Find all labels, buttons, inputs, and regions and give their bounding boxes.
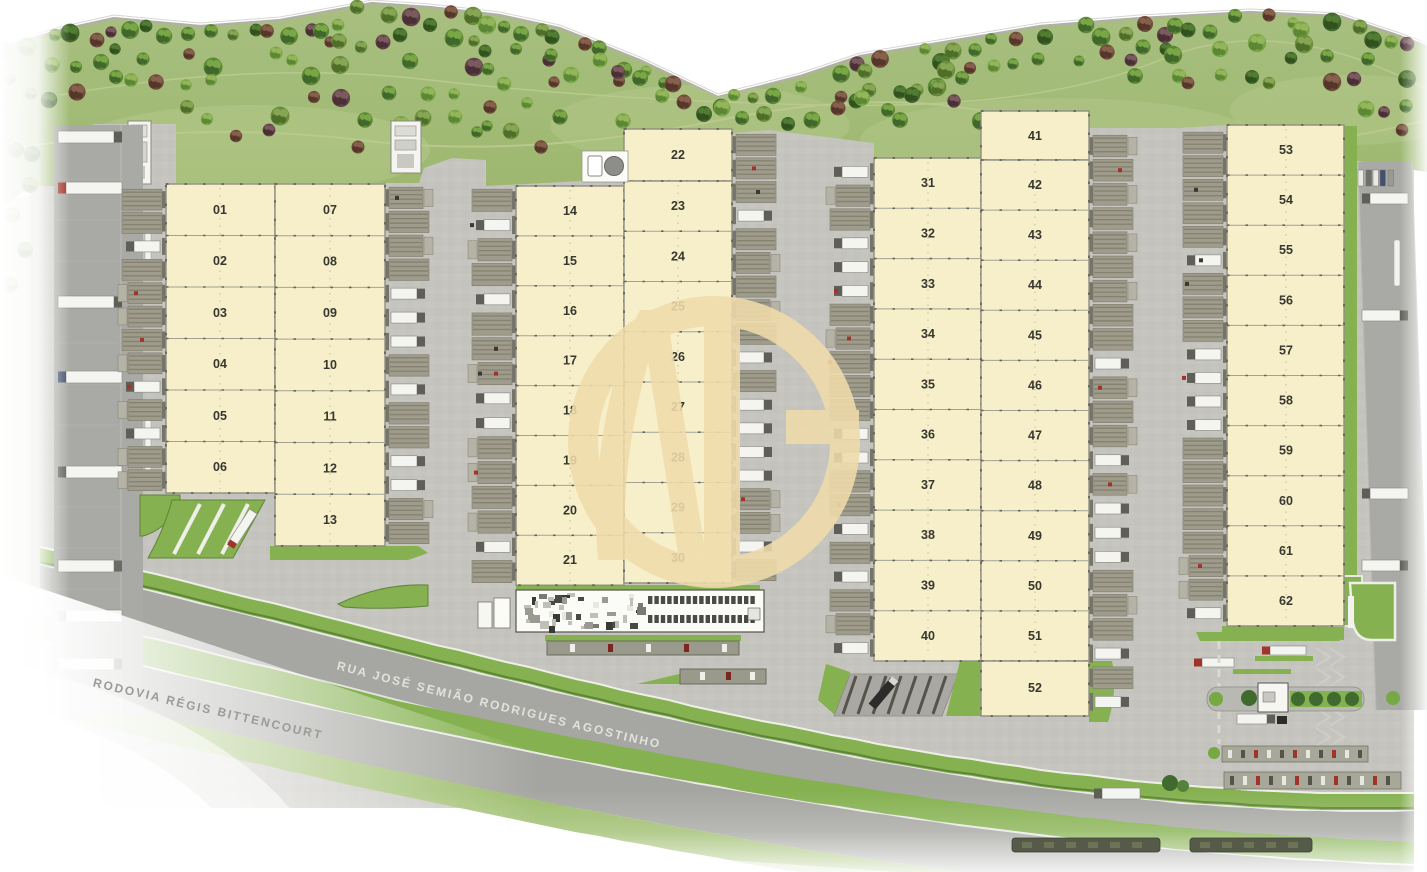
svg-text:03: 03 — [213, 306, 227, 320]
svg-text:57: 57 — [1279, 343, 1293, 357]
svg-text:43: 43 — [1028, 228, 1042, 242]
svg-text:31: 31 — [921, 176, 935, 190]
svg-text:42: 42 — [1028, 178, 1042, 192]
svg-text:47: 47 — [1028, 429, 1042, 443]
svg-text:46: 46 — [1028, 378, 1042, 392]
svg-text:50: 50 — [1028, 579, 1042, 593]
svg-text:36: 36 — [921, 428, 935, 442]
svg-text:35: 35 — [921, 377, 935, 391]
svg-text:04: 04 — [213, 357, 227, 371]
svg-text:51: 51 — [1028, 629, 1042, 643]
svg-text:22: 22 — [671, 148, 685, 162]
svg-text:38: 38 — [921, 528, 935, 542]
svg-text:02: 02 — [213, 254, 227, 268]
svg-text:53: 53 — [1279, 143, 1293, 157]
svg-text:59: 59 — [1279, 444, 1293, 458]
svg-text:37: 37 — [921, 478, 935, 492]
svg-text:23: 23 — [671, 199, 685, 213]
svg-text:13: 13 — [323, 513, 337, 527]
svg-text:21: 21 — [563, 553, 577, 567]
svg-text:15: 15 — [563, 254, 577, 268]
svg-text:12: 12 — [323, 461, 337, 475]
svg-text:54: 54 — [1279, 193, 1293, 207]
svg-text:61: 61 — [1279, 544, 1293, 558]
svg-text:09: 09 — [323, 306, 337, 320]
svg-text:40: 40 — [921, 629, 935, 643]
svg-text:44: 44 — [1028, 278, 1042, 292]
svg-text:56: 56 — [1279, 293, 1293, 307]
svg-text:06: 06 — [213, 460, 227, 474]
svg-text:08: 08 — [323, 255, 337, 269]
svg-text:14: 14 — [563, 204, 577, 218]
svg-text:20: 20 — [563, 503, 577, 517]
svg-text:01: 01 — [213, 203, 227, 217]
svg-text:60: 60 — [1279, 494, 1293, 508]
svg-text:52: 52 — [1028, 681, 1042, 695]
svg-text:45: 45 — [1028, 328, 1042, 342]
svg-text:62: 62 — [1279, 594, 1293, 608]
svg-text:05: 05 — [213, 409, 227, 423]
svg-text:41: 41 — [1028, 129, 1042, 143]
svg-text:24: 24 — [671, 249, 685, 263]
svg-text:58: 58 — [1279, 394, 1293, 408]
svg-text:34: 34 — [921, 327, 935, 341]
svg-text:39: 39 — [921, 579, 935, 593]
svg-text:32: 32 — [921, 227, 935, 241]
svg-text:16: 16 — [563, 304, 577, 318]
svg-text:48: 48 — [1028, 479, 1042, 493]
svg-text:10: 10 — [323, 358, 337, 372]
svg-text:17: 17 — [563, 354, 577, 368]
svg-text:11: 11 — [323, 410, 336, 424]
svg-text:49: 49 — [1028, 529, 1042, 543]
svg-text:33: 33 — [921, 277, 935, 291]
svg-text:55: 55 — [1279, 243, 1293, 257]
svg-text:07: 07 — [323, 203, 337, 217]
